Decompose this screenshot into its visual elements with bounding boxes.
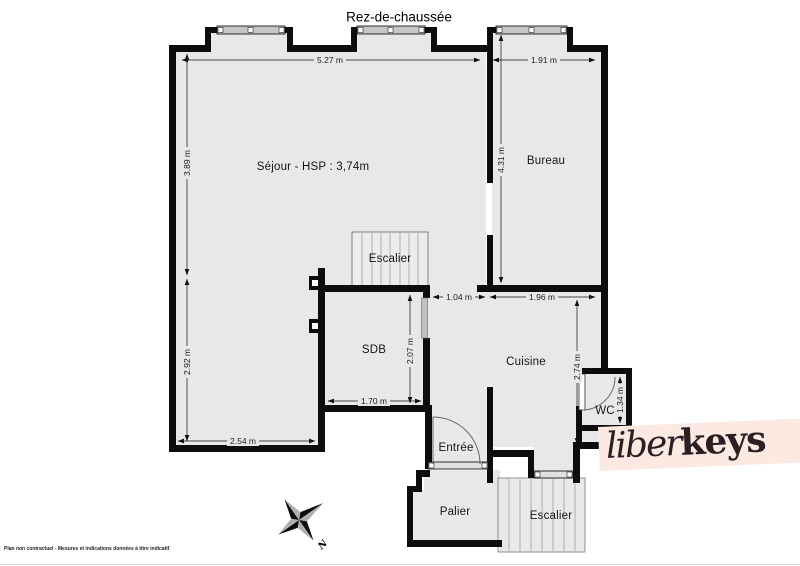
dim-sejour-height-top: 3.89 m	[182, 147, 192, 179]
dim-bureau-height: 4.31 m	[496, 144, 506, 176]
sdb-sliding-door	[422, 298, 428, 338]
dim-wc-height: 1.34 m	[615, 384, 625, 416]
room-label-bureau: Bureau	[527, 155, 565, 167]
plan-disclaimer: Plan non contractuel - Mesures et indica…	[4, 546, 169, 552]
window-sejour-left	[217, 26, 285, 34]
room-label-sdb: SDB	[362, 344, 386, 356]
dim-sejour-height-bottom: 2.92 m	[182, 346, 192, 378]
window-sejour-right	[357, 26, 425, 34]
dim-cuisine-width: 1.96 m	[526, 292, 558, 302]
room-label-wc: WC	[595, 405, 615, 417]
dim-bureau-width: 1.91 m	[528, 55, 560, 65]
dim-sdb-height: 2.07 m	[405, 335, 415, 367]
window-bureau	[496, 26, 567, 34]
dim-sdb-width: 1.70 m	[358, 396, 390, 406]
dim-sejour-width: 5.27 m	[314, 55, 346, 65]
dim-sejour-bottom-width: 2.54 m	[227, 436, 259, 446]
logo-bold-part: keys	[680, 418, 767, 464]
floor-plan-svg	[0, 0, 800, 566]
logo-script-part: liber	[605, 423, 681, 467]
compass-rose-icon	[278, 496, 323, 541]
room-label-escalier-haut: Escalier	[369, 253, 412, 265]
dim-cuisine-height: 2.74 m	[572, 351, 582, 383]
room-label-entree: Entrée	[438, 442, 473, 454]
window-stairwell	[534, 471, 573, 478]
floor-plan-page: { "title": "Rez-de-chaussée", "rooms": {…	[0, 0, 800, 566]
room-label-palier: Palier	[440, 506, 471, 518]
room-label-sejour: Séjour - HSP : 3,74m	[257, 161, 369, 173]
room-label-escalier-bas: Escalier	[530, 510, 573, 522]
liberkeys-logo: liberkeys	[605, 417, 766, 469]
plan-title: Rez-de-chaussée	[346, 10, 452, 25]
bottom-divider	[0, 564, 800, 565]
dim-passage-width: 1.04 m	[443, 292, 475, 302]
room-label-cuisine: Cuisine	[506, 356, 546, 368]
